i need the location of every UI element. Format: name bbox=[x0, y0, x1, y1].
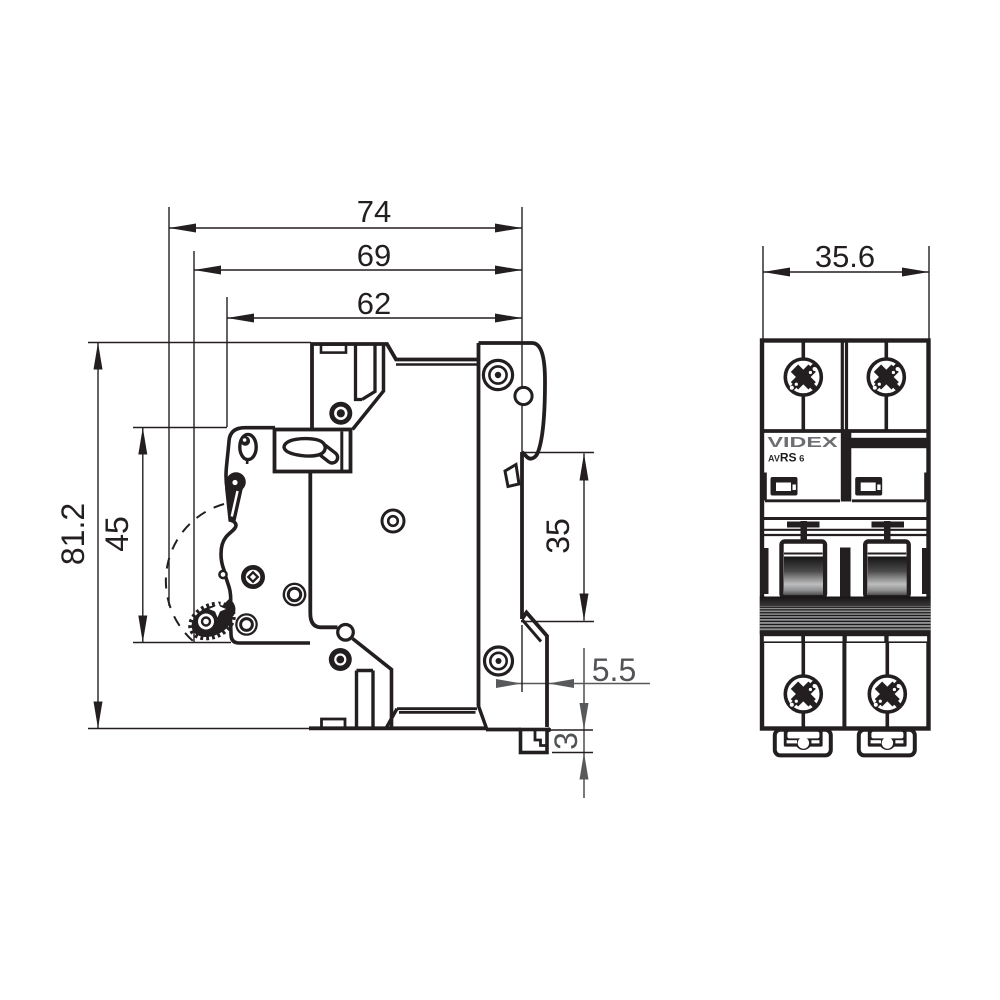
svg-text:74: 74 bbox=[357, 194, 391, 229]
svg-text:35: 35 bbox=[540, 518, 576, 554]
svg-text:62: 62 bbox=[357, 286, 391, 321]
svg-text:35.6: 35.6 bbox=[815, 239, 875, 274]
svg-text:5.5: 5.5 bbox=[592, 652, 636, 688]
svg-text:45: 45 bbox=[99, 516, 135, 552]
svg-text:VIDEX: VIDEX bbox=[768, 434, 838, 451]
svg-text:81.2: 81.2 bbox=[55, 503, 91, 565]
svg-text:3: 3 bbox=[548, 732, 584, 750]
svg-text:AVRS 6: AVRS 6 bbox=[768, 451, 804, 465]
svg-text:69: 69 bbox=[357, 238, 391, 273]
